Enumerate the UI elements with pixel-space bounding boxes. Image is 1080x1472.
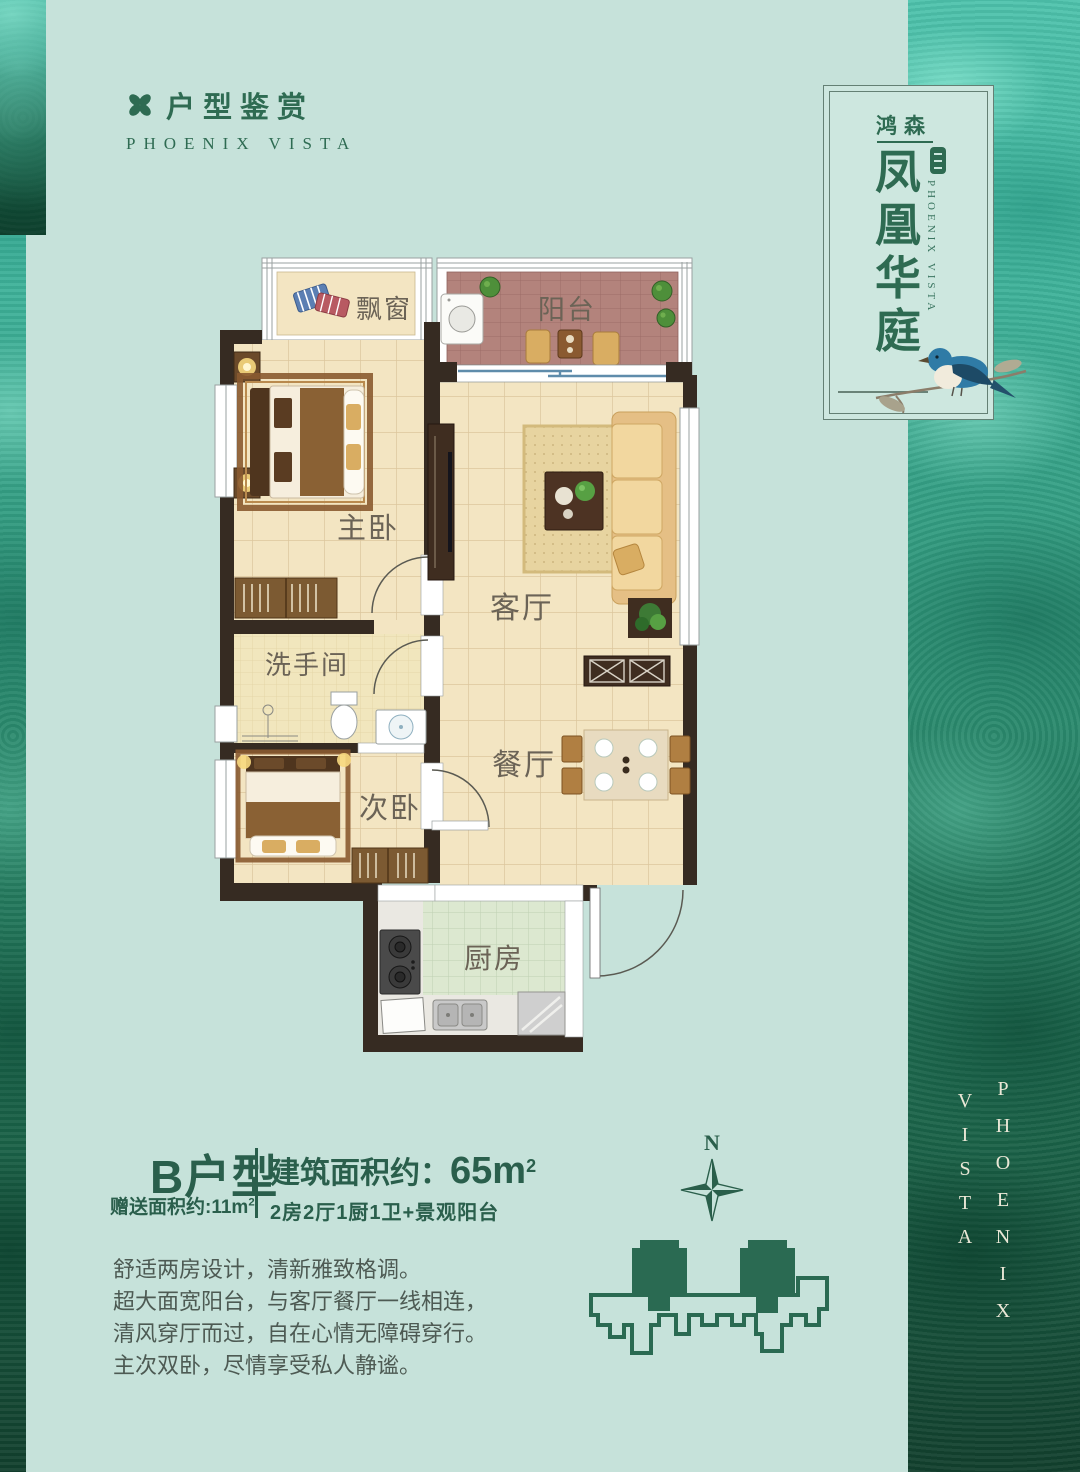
plant-stand [628, 598, 672, 638]
description-block: 舒适两房设计，清新雅致格调。 超大面宽阳台，与客厅餐厅一线相连， 清风穿厅而过，… [113, 1254, 487, 1382]
bonus-area-sup: 2 [248, 1197, 254, 1209]
project-name-vertical: 凤 凰 华 庭 [870, 146, 926, 358]
label-bay-window: 飘窗 [356, 294, 412, 324]
door-niche [374, 620, 424, 636]
page-subtitle: PHOENIX VISTA [126, 134, 357, 154]
bay-window: 飘窗 [262, 258, 432, 340]
tv-stand [584, 656, 670, 686]
label-kitchen: 厨房 [464, 943, 524, 974]
description-line: 清风穿厅而过，自在心情无障碍穿行。 [113, 1318, 487, 1350]
counter-icon [518, 992, 565, 1035]
label-living-room: 客厅 [490, 592, 554, 625]
sofa [612, 412, 676, 604]
top-left-watercolor-patch [0, 0, 46, 235]
bathroom-sink-icon [376, 710, 426, 744]
side-brand-word-phoenix: PHOENIX [991, 1078, 1014, 1337]
layout-config-label: 2房2厅1厨1卫+景观阳台 [270, 1196, 499, 1225]
info-divider [255, 1148, 258, 1218]
bonus-area-text: 赠送面积约:11m [110, 1197, 248, 1218]
label-second-bedroom: 次卧 [359, 792, 421, 825]
coffee-table [545, 472, 603, 530]
page-title: 户型鉴赏 [166, 84, 314, 126]
entry-door-panel [590, 888, 600, 978]
floor-plan: 飘窗 阳台 [210, 250, 710, 1070]
label-bathroom: 洗手间 [265, 650, 349, 680]
toilet-icon [331, 692, 357, 739]
door-panel [432, 821, 488, 830]
poster-page: 户型鉴赏 PHOENIX VISTA 鸿森 凤 凰 华 庭 PHOENIX VI… [0, 0, 1080, 1472]
kitchen-sink-icon [433, 1000, 487, 1030]
second-wardrobe [352, 848, 428, 883]
tower-blocks [632, 1240, 795, 1313]
washing-machine-icon [441, 294, 483, 344]
built-area-label: 建筑面积约：65m2 [270, 1148, 536, 1193]
second-bed [237, 752, 351, 860]
built-area-sup: 2 [526, 1156, 536, 1176]
side-brand-word-vista: VISTA [953, 1090, 976, 1260]
label-dining-room: 餐厅 [492, 749, 556, 782]
cutting-board [381, 998, 425, 1034]
master-bed [234, 352, 370, 508]
balcony: 阳台 [437, 258, 692, 375]
developer-name: 鸿森 [876, 110, 932, 140]
master-wardrobe [235, 578, 337, 618]
compass-north-label: N [704, 1130, 720, 1155]
description-line: 超大面宽阳台，与客厅餐厅一线相连， [113, 1286, 487, 1318]
clover-icon [126, 90, 154, 120]
tv-cabinet [428, 424, 454, 580]
balcony-sliding-door [437, 365, 692, 382]
project-name-char: 凰 [870, 199, 926, 252]
seal-icon [930, 147, 946, 174]
description-line: 舒适两房设计，清新雅致格调。 [113, 1254, 487, 1286]
compass-icon: N [672, 1126, 754, 1248]
site-plan-diagram [585, 1233, 835, 1363]
description-line: 主次双卧，尽情享受私人静谧。 [113, 1350, 487, 1382]
built-area-number: 65m [450, 1150, 526, 1192]
stove-icon [380, 930, 420, 994]
bonus-area-label: 赠送面积约:11m2 [110, 1192, 255, 1219]
project-name-char: 凤 [870, 146, 926, 199]
project-name-char: 华 [870, 252, 926, 305]
swallow-bird-icon [874, 332, 1034, 416]
section-header: 户型鉴赏 PHOENIX VISTA [126, 84, 357, 154]
label-balcony: 阳台 [538, 295, 596, 325]
badge-rule [877, 141, 933, 143]
built-area-text: 建筑面积约： [270, 1157, 450, 1190]
label-master-bedroom: 主卧 [337, 512, 399, 545]
brand-badge: 鸿森 凤 凰 华 庭 PHOENIX VISTA [823, 85, 994, 420]
